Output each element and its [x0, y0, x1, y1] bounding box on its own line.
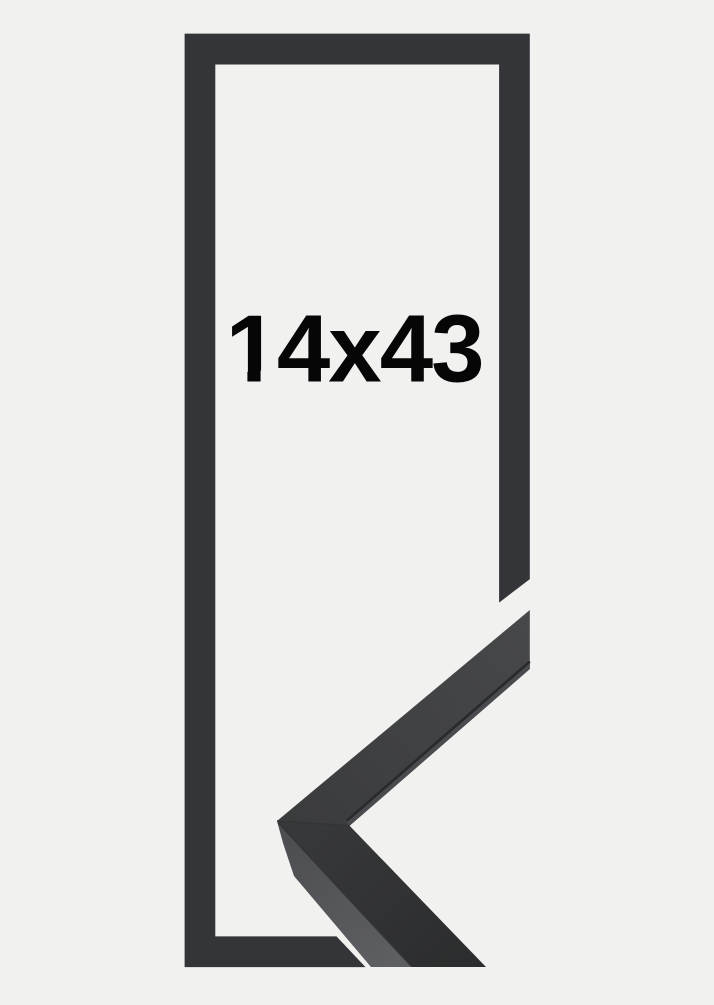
svg-text:14x43: 14x43 — [226, 296, 483, 403]
